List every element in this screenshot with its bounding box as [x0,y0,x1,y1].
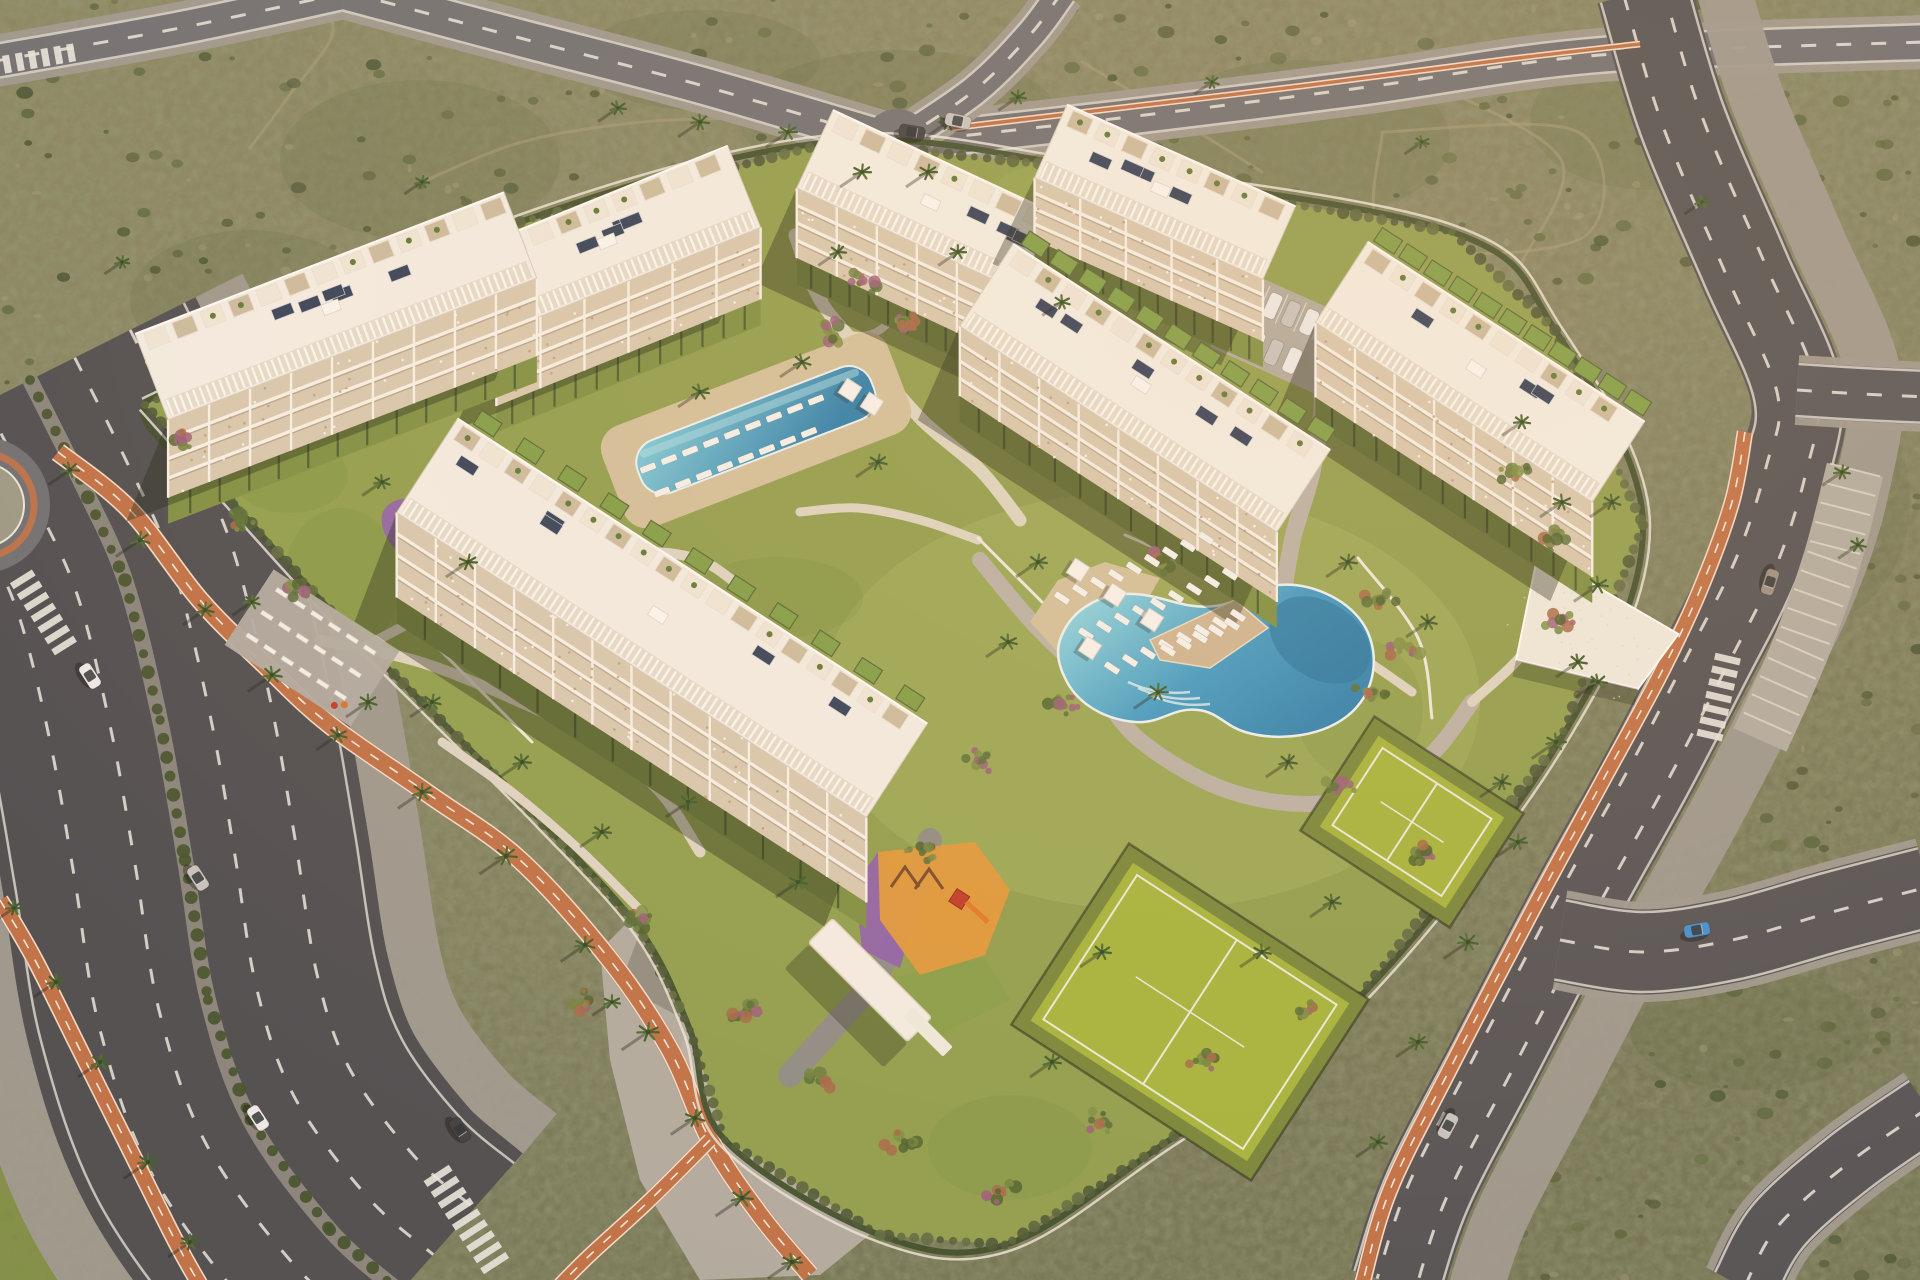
render-canvas [0,0,1920,1280]
aerial-site-render [0,0,1920,1280]
sunset-tint [0,0,1920,1280]
color-grade-overlay [0,0,1920,1280]
